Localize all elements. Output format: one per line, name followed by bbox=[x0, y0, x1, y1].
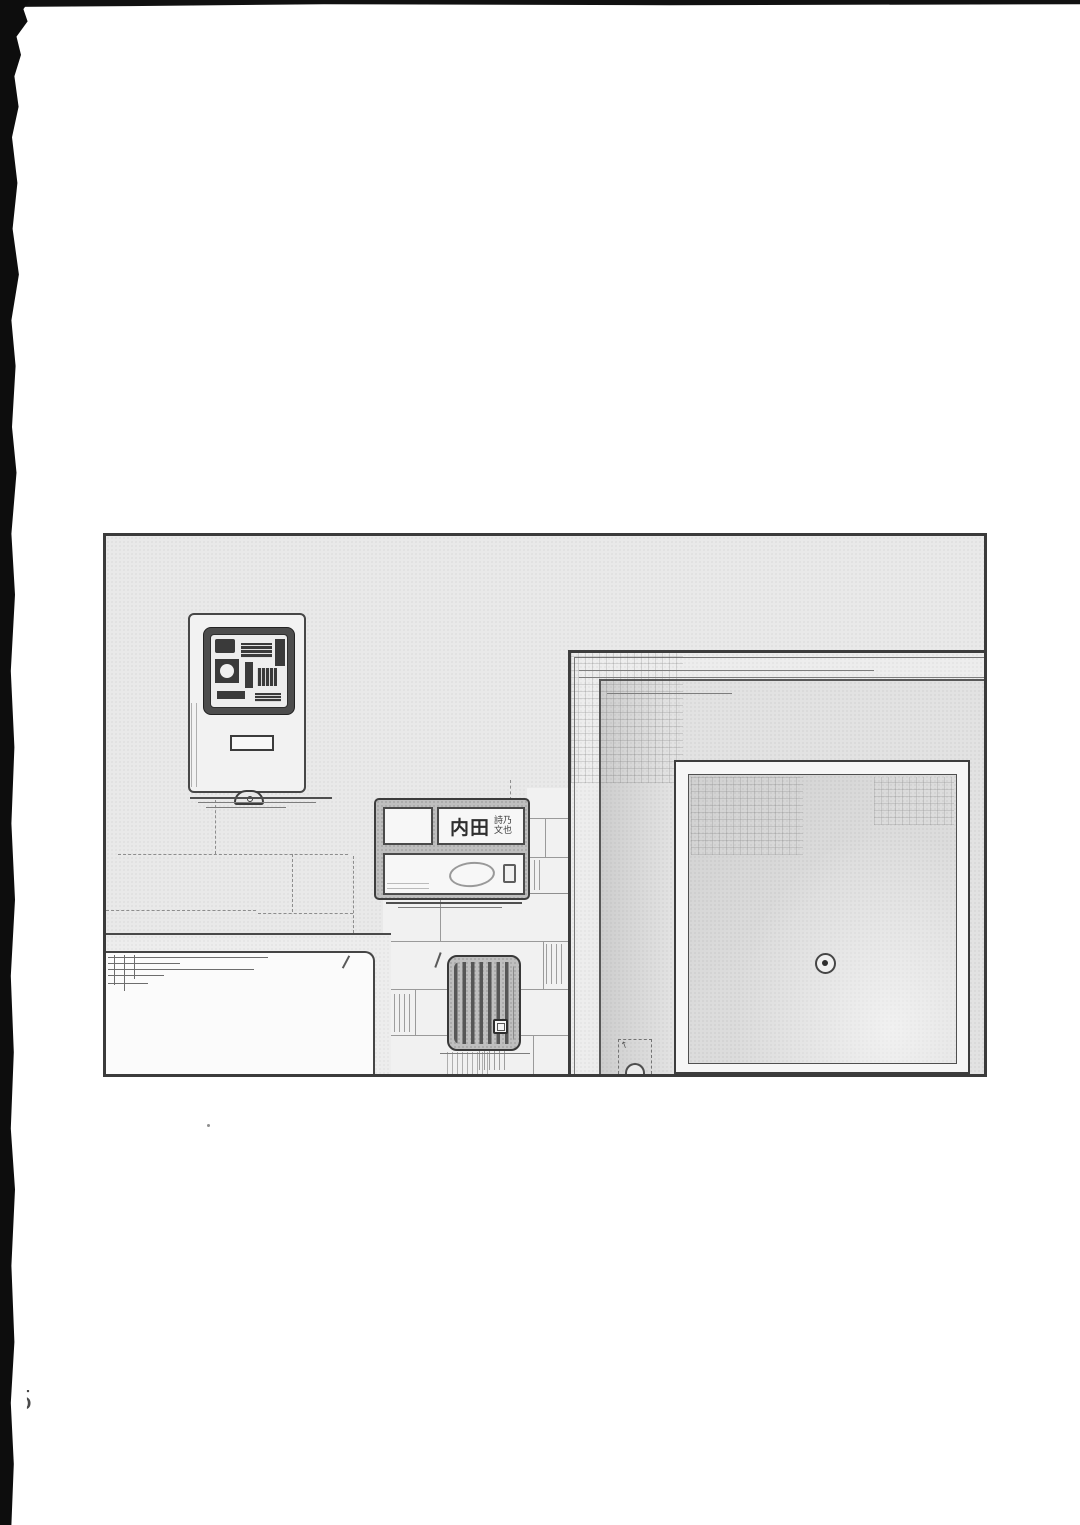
mail-slot-latch bbox=[503, 864, 516, 883]
peephole-icon bbox=[815, 953, 836, 974]
wall-joint-line bbox=[510, 780, 511, 800]
meter-dial-icon bbox=[220, 664, 234, 678]
pencil-shading bbox=[191, 703, 200, 787]
blank-nameplate bbox=[383, 807, 433, 845]
wall-joint-line bbox=[292, 854, 293, 912]
nameplate-given-name-top: 詩乃 bbox=[494, 816, 512, 826]
shadow-line bbox=[198, 802, 316, 803]
meter-dial-panel bbox=[210, 634, 288, 708]
page-number-partial: 5 bbox=[16, 1386, 42, 1418]
wall-joint-line bbox=[258, 913, 353, 914]
meter-label-slot bbox=[230, 735, 274, 751]
pencil-tick bbox=[434, 952, 441, 968]
corner-hatching bbox=[571, 653, 683, 783]
corner-hatching bbox=[691, 777, 803, 855]
wall-joint-line bbox=[106, 910, 256, 911]
pencil-tick: ↑ bbox=[620, 1040, 631, 1052]
resident-nameplate: 内田 詩乃 文也 bbox=[437, 807, 525, 845]
sticker-oval bbox=[448, 860, 496, 889]
shadow-line bbox=[206, 807, 286, 808]
shadow-line bbox=[440, 1053, 530, 1054]
pencil-shading bbox=[447, 1052, 489, 1074]
corner-hatching bbox=[874, 777, 954, 825]
nameplate-family-name: 内田 bbox=[450, 813, 490, 840]
meter-window bbox=[203, 627, 295, 715]
wall-joint-line bbox=[353, 856, 354, 933]
pencil-shading bbox=[387, 881, 429, 894]
foreground-wall bbox=[106, 933, 391, 1074]
entrance-door[interactable] bbox=[688, 774, 957, 1064]
doorbell[interactable]: ↑ bbox=[618, 1039, 652, 1074]
scan-left-edge bbox=[0, 0, 30, 1525]
shadow-line bbox=[190, 797, 332, 799]
paper-speck bbox=[207, 1124, 210, 1127]
shadow-line bbox=[386, 902, 522, 904]
vent-button[interactable] bbox=[493, 1019, 508, 1034]
mail-slot-panel[interactable] bbox=[383, 853, 525, 895]
vent-grille bbox=[447, 955, 521, 1051]
entrance-door-frame bbox=[674, 760, 970, 1074]
foreground-wall-face bbox=[106, 951, 375, 1076]
manga-panel: ↑ 内田 bbox=[103, 533, 987, 1077]
doorbell-button[interactable] bbox=[625, 1063, 645, 1074]
shadow-line bbox=[398, 907, 502, 908]
nameplate-given-name-bottom: 文也 bbox=[494, 826, 512, 836]
pencil-tick bbox=[342, 955, 350, 968]
electric-meter-box bbox=[188, 613, 306, 793]
wall-joint-line bbox=[118, 854, 348, 855]
scan-top-edge bbox=[0, 0, 1080, 7]
wall-joint-line bbox=[215, 800, 216, 854]
nameplate-mailbox: 内田 詩乃 文也 bbox=[374, 798, 530, 900]
